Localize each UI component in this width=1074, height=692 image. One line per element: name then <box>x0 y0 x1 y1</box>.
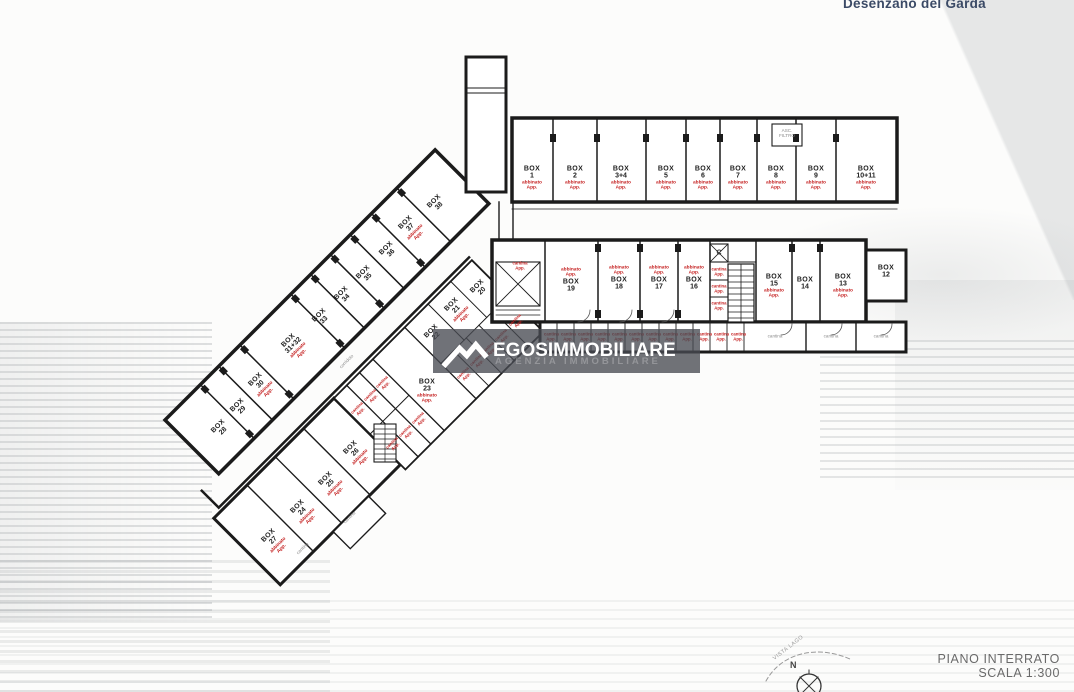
brand-house-icon <box>439 333 491 369</box>
floor-title: PIANO INTERRATO <box>938 652 1060 666</box>
brand-subtitle: AGENZIA IMMOBILIARE <box>495 356 661 367</box>
scanned-floorplan-page: BOX1abbinato App.BOX2abbinato App.BOX3+4… <box>0 0 1074 692</box>
titleblock: PIANO INTERRATO SCALA 1:300 <box>938 652 1060 681</box>
compass-north-label: N <box>790 660 797 670</box>
scale-label: SCALA 1:300 <box>938 666 1060 680</box>
watermark-band: EGOSIMMOBILIARE AGENZIA IMMOBILIARE <box>433 329 700 373</box>
location-title: Desenzano del Garda <box>843 0 1023 11</box>
